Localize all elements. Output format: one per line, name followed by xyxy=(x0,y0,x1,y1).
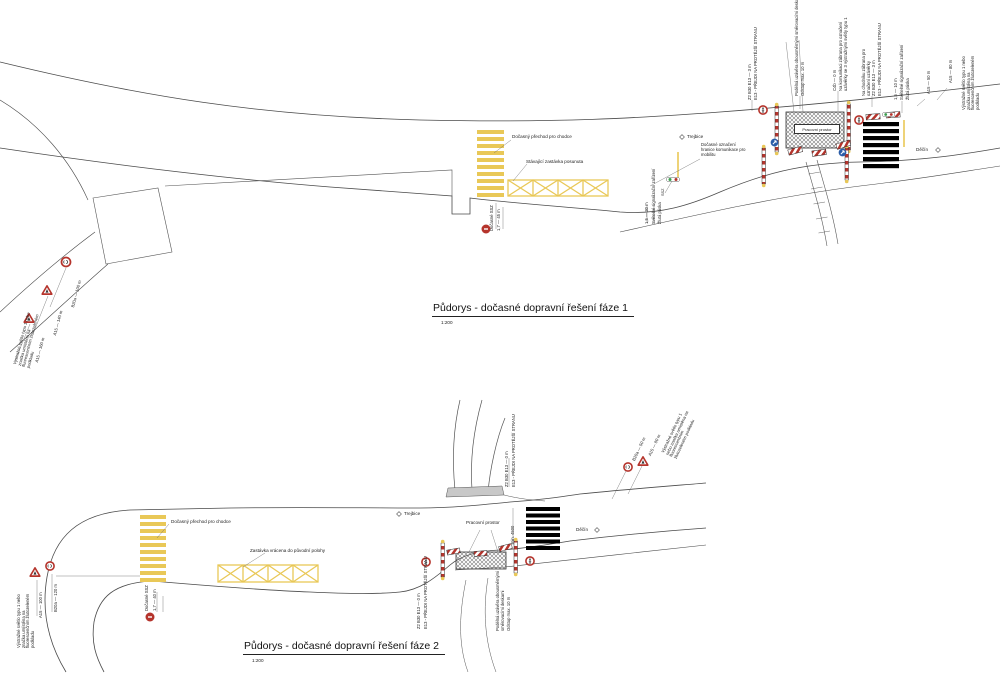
plan1-label-stop-moved: Stávající zastávka posunuta xyxy=(526,159,583,164)
plan1-note-e3: Žlutá páska xyxy=(906,78,911,100)
no-pedestrians-sign-icon xyxy=(759,106,767,114)
plan1-temp-signal-mid xyxy=(666,152,679,182)
plan1-town-right: Děčín xyxy=(916,147,928,152)
plan1-note-a2: E13 - PŘEJDI NA PROTĚJŠÍ STRANU xyxy=(754,27,759,100)
plan2-left-signs xyxy=(30,562,54,576)
plan2-ssz-mid-label: Dočasné SSZ xyxy=(145,585,150,611)
plan1-label-mobility: Dočasné označení hranice komunikace pro … xyxy=(701,143,749,157)
no-pedestrians-sign-icon xyxy=(855,116,863,124)
plan2-note-branch1: Z2 B30 E13 — 0 m xyxy=(505,451,510,487)
plan1-temp-crossing-marking xyxy=(477,130,504,197)
plan2-scale: 1:200 xyxy=(252,658,264,663)
no-pedestrians-sign-icon xyxy=(526,557,534,565)
keep-right-sign-icon xyxy=(839,149,847,157)
plan1-note-c2: Na komunikaci zábrana pro označení uzávě… xyxy=(839,9,848,91)
plan1-ssz-small-label: SSZ xyxy=(661,189,665,196)
plan1-note-a1: Z2 B30 E13 — 3 m xyxy=(748,64,753,100)
plan1-note-d2: Z2 B30 E13 — 3 m xyxy=(872,60,877,96)
plan2-town-left: Trejbice xyxy=(404,511,420,516)
warning-sign-icon xyxy=(30,568,40,576)
plan1-bridge-ramp xyxy=(806,160,838,246)
plan2-work-area-label: Pracovní prostor xyxy=(466,520,500,525)
plan2-temp-crossing-marking xyxy=(140,515,166,582)
speed-limit-sign-icon xyxy=(61,257,70,266)
plan1-note-f1: A15 — 50 m xyxy=(927,71,932,94)
speed-limit-sign-icon xyxy=(624,463,632,471)
plan2-ssz-mid-dim: 1,7 — 40 m xyxy=(153,589,158,611)
plan2-note-wz-r2: Odstup max. 10 m xyxy=(507,597,512,631)
plan1-town-left: Trejbice xyxy=(687,134,703,139)
plan2-label-stop-back: Zastávka vrácena do původní polohy xyxy=(250,548,325,553)
speed-limit-sign-icon xyxy=(46,562,54,570)
plan2-bus-stop-marking xyxy=(218,565,318,582)
plan1-note-e2: Světelné signalizační zařízení xyxy=(900,45,905,100)
plan1-ssz-mid-label: Dočasné SSZ xyxy=(490,205,495,231)
plan1-note-b2: Odstup max. 10 m xyxy=(801,62,806,96)
plan2-ssz-dot xyxy=(146,613,155,622)
plan1-bus-stop-marking xyxy=(508,180,608,196)
plan1-note-g: Výstražné světlo typu 1 nebo značka umís… xyxy=(962,55,980,110)
plan2-dim-zebra: min. 4500 xyxy=(511,526,516,544)
plan1-scale: 1:200 xyxy=(441,320,453,325)
plan1-buildings xyxy=(93,170,452,264)
plan2-note-wz-l2: E13 - PŘEJDI NA PROTĚJŠÍ STRANU xyxy=(424,556,429,629)
plan2-title: Půdorys - dočasné dopravní řešení fáze 2 xyxy=(243,640,445,655)
plan2-label-temp-crossing: Dočasný přechod pro chodce xyxy=(171,519,231,524)
plan1-note-e1: 1,5 — 10 m xyxy=(894,78,899,100)
plan2-note-branch2: E13 - PŘEJDI NA PROTĚJŠÍ STRANU xyxy=(512,414,517,487)
plan2-left-sign2-label: A15 — 100 m xyxy=(39,592,44,618)
plan2-driveway xyxy=(461,578,496,672)
plan1-note-c1: C4b — 0 m xyxy=(833,70,838,91)
warning-sign-icon xyxy=(638,457,648,465)
plan2-note-wz-r1: Podélná uzávěra obousměrnými směrovacími… xyxy=(496,553,505,631)
plan1-title: Půdorys - dočasné dopravní řešení fáze 1 xyxy=(432,302,634,317)
plan1-note-d3: E13 - PŘEJDI NA PROTĚJŠÍ STRANU xyxy=(878,23,883,96)
plan2-left-sign1-label: B20a — 120 m xyxy=(54,584,59,612)
plan1-note-f2: A15 — 80 m xyxy=(949,60,954,83)
plan1-signal-pill xyxy=(882,112,894,116)
plan2-branch-road xyxy=(446,400,545,501)
plan2-left-sign-note: Výstražné světlo typu 1 nebo značka umís… xyxy=(17,590,35,648)
plan2-town-right: Děčín xyxy=(576,527,588,532)
plan1-ssz-right-l1: Světelné signalizační zařízení xyxy=(652,169,657,224)
plan1-note-d1: Na chodníku zábrana pro označení uzávěrk… xyxy=(862,40,871,96)
plan1-ssz-right-dim: 1,5 — 30 m xyxy=(645,202,650,224)
plan1-work-area-label: Pracovní prostor xyxy=(794,124,840,134)
plan1-ssz-right-l2: Žlutá páska xyxy=(658,202,663,224)
keep-right-sign-icon xyxy=(771,139,779,147)
plan2-note-wz-l1: Z2 B30 E13 — 0 m xyxy=(417,593,422,629)
warning-sign-icon xyxy=(42,286,52,294)
plan1-label-temp-crossing: Dočasný přechod pro chodce xyxy=(512,134,572,139)
traffic-plan-sheet: Půdorys - dočasné dopravní řešení fáze 1… xyxy=(0,0,1000,673)
plan1-ssz-mid-dim: 1,7 — 45 m xyxy=(497,209,502,231)
plan1-note-b1: Podélná uzávěra obousměrnými směrovacími… xyxy=(795,0,800,96)
